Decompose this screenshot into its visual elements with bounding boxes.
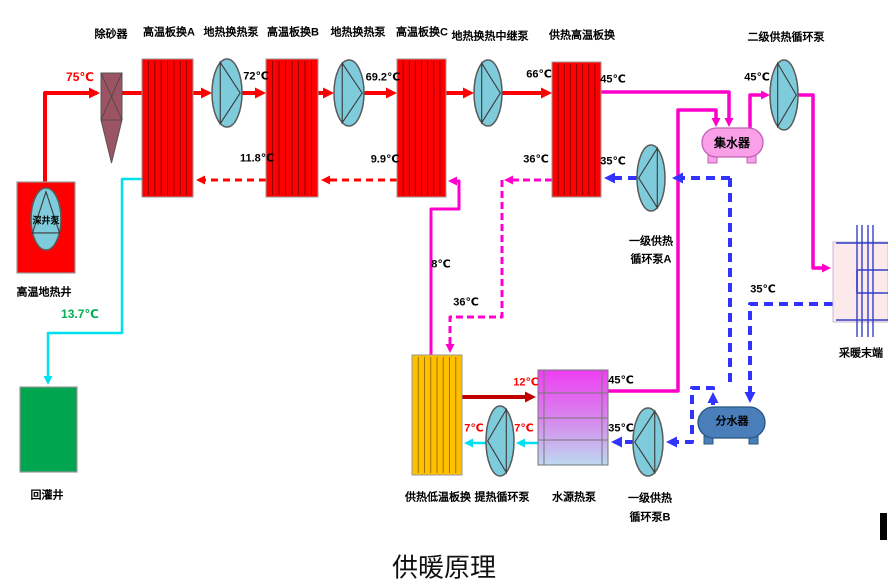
temp-8c: 8℃: [431, 260, 450, 271]
temp-75c: 75℃: [66, 71, 94, 83]
label-hx-heating-low: 供热低温板换: [405, 493, 471, 504]
radiator-terminal: [833, 242, 888, 322]
reinjection-well-box: [20, 387, 77, 472]
temp-35c-radiator: 35℃: [750, 285, 776, 296]
temp-35c-wshp: 35℃: [608, 424, 634, 435]
pump-geothermal-2-icon: [334, 60, 364, 126]
arrowhead-icon: [463, 88, 474, 99]
label-hx-heating-high: 供热高温板换: [549, 31, 615, 42]
arrowhead-icon: [504, 176, 513, 185]
arrowhead-icon: [255, 88, 266, 99]
label-hx-a: 高温板换A: [143, 28, 195, 39]
heating-principle-diagram: 除砂器高温板换A地热换热泵高温板换B地热换热泵高温板换C地热换热中继泵供热高温板…: [0, 0, 888, 586]
arrowhead-icon: [712, 118, 721, 127]
temp-69-2c: 69.2℃: [366, 73, 401, 84]
arrowhead-icon: [745, 392, 756, 403]
arrowhead-icon: [321, 176, 330, 185]
arrowhead-icon: [448, 177, 457, 186]
temp-45c-wshp: 45℃: [608, 376, 634, 387]
temp-66c: 66℃: [526, 70, 552, 81]
pump-primary-heating-a-icon: [637, 145, 665, 211]
label-pump-geothermal-2: 地热换热泵: [331, 28, 386, 39]
sand-separator-icon: [101, 73, 122, 163]
arrowhead-icon: [196, 176, 205, 185]
label-sand-separator: 除砂器: [95, 30, 128, 41]
arrowhead-icon: [464, 439, 473, 448]
pump-primary-heating-b-icon: [633, 408, 663, 476]
pump-secondary-heating-icon: [770, 60, 798, 130]
pipe-radiator-return: [750, 304, 833, 398]
temp-7c-right: 7℃: [514, 424, 533, 435]
temp-12c: 12℃: [513, 378, 539, 389]
label-pump-a-line1: 一级供热: [629, 237, 673, 248]
arrowhead-icon: [323, 88, 334, 99]
pipe-collector-to-pump4: [750, 95, 766, 129]
arrowhead-icon: [516, 439, 525, 448]
label-pump-secondary: 二级供热循环泵: [748, 33, 825, 44]
label-hx-c: 高温板换C: [396, 28, 448, 39]
label-pump-b-line2: 循环泵B: [630, 513, 671, 524]
label-water-source-hp: 水源热泵: [552, 493, 596, 504]
arrowhead-icon: [708, 392, 719, 403]
cursor-bar: [880, 513, 887, 540]
label-deep-well-pump: 深井泵: [32, 217, 59, 226]
label-pump-heat-extraction: 提热循环泵: [475, 493, 530, 504]
arrowhead-icon: [89, 88, 100, 99]
pump-heat-extraction-icon: [486, 406, 514, 476]
label-reinjection-well: 回灌井: [31, 491, 64, 502]
pipe-pump4-to-radiator: [798, 95, 827, 268]
temp-35c-hxh: 35℃: [600, 157, 626, 168]
label-hx-b: 高温板换B: [267, 28, 319, 39]
temp-45c-pump4: 45℃: [744, 73, 770, 84]
label-pump-relay: 地热换热中继泵: [452, 32, 529, 43]
arrowhead-icon: [525, 392, 536, 403]
arrowhead-icon: [611, 437, 622, 448]
label-radiator: 采暖末端: [839, 349, 883, 360]
arrowhead-icon: [822, 264, 831, 273]
label-pump-b-line1: 一级供热: [628, 494, 672, 505]
pipe-well-to-sand: [45, 93, 97, 185]
label-geothermal-well: 高温地热井: [17, 288, 72, 299]
pump-geothermal-relay-icon: [474, 60, 502, 126]
arrowhead-icon: [761, 91, 770, 100]
temp-9-9c: 9.9℃: [371, 155, 400, 166]
arrowhead-icon: [725, 118, 734, 127]
arrowhead-icon: [541, 88, 552, 99]
arrowhead-icon: [604, 173, 615, 184]
arrowhead-icon: [44, 376, 53, 385]
label-collector: 集水器: [714, 137, 750, 149]
temp-11-8c: 11.8℃: [240, 154, 274, 165]
arrowhead-icon: [201, 88, 212, 99]
arrowhead-icon: [446, 344, 455, 353]
temp-72c: 72℃: [243, 72, 269, 83]
temp-36c-bottom: 36℃: [453, 298, 479, 309]
label-distributor: 分水器: [716, 417, 749, 428]
temp-13-7c: 13.7℃: [61, 308, 99, 320]
pipe-hxh-to-collector: [601, 92, 729, 122]
temp-36c-top: 36℃: [523, 155, 549, 166]
pump-geothermal-1-icon: [212, 59, 242, 127]
pipe-wshp-to-collector: [608, 110, 716, 391]
temp-7c-left: 7℃: [464, 424, 483, 435]
arrowhead-icon: [666, 437, 677, 448]
label-pump-a-line2: 循环泵A: [631, 255, 672, 266]
label-pump-geothermal-1: 地热换热泵: [204, 28, 259, 39]
temp-45c-hxh: 45℃: [600, 75, 626, 86]
arrowhead-icon: [386, 88, 397, 99]
diagram-title: 供暖原理: [392, 548, 496, 585]
